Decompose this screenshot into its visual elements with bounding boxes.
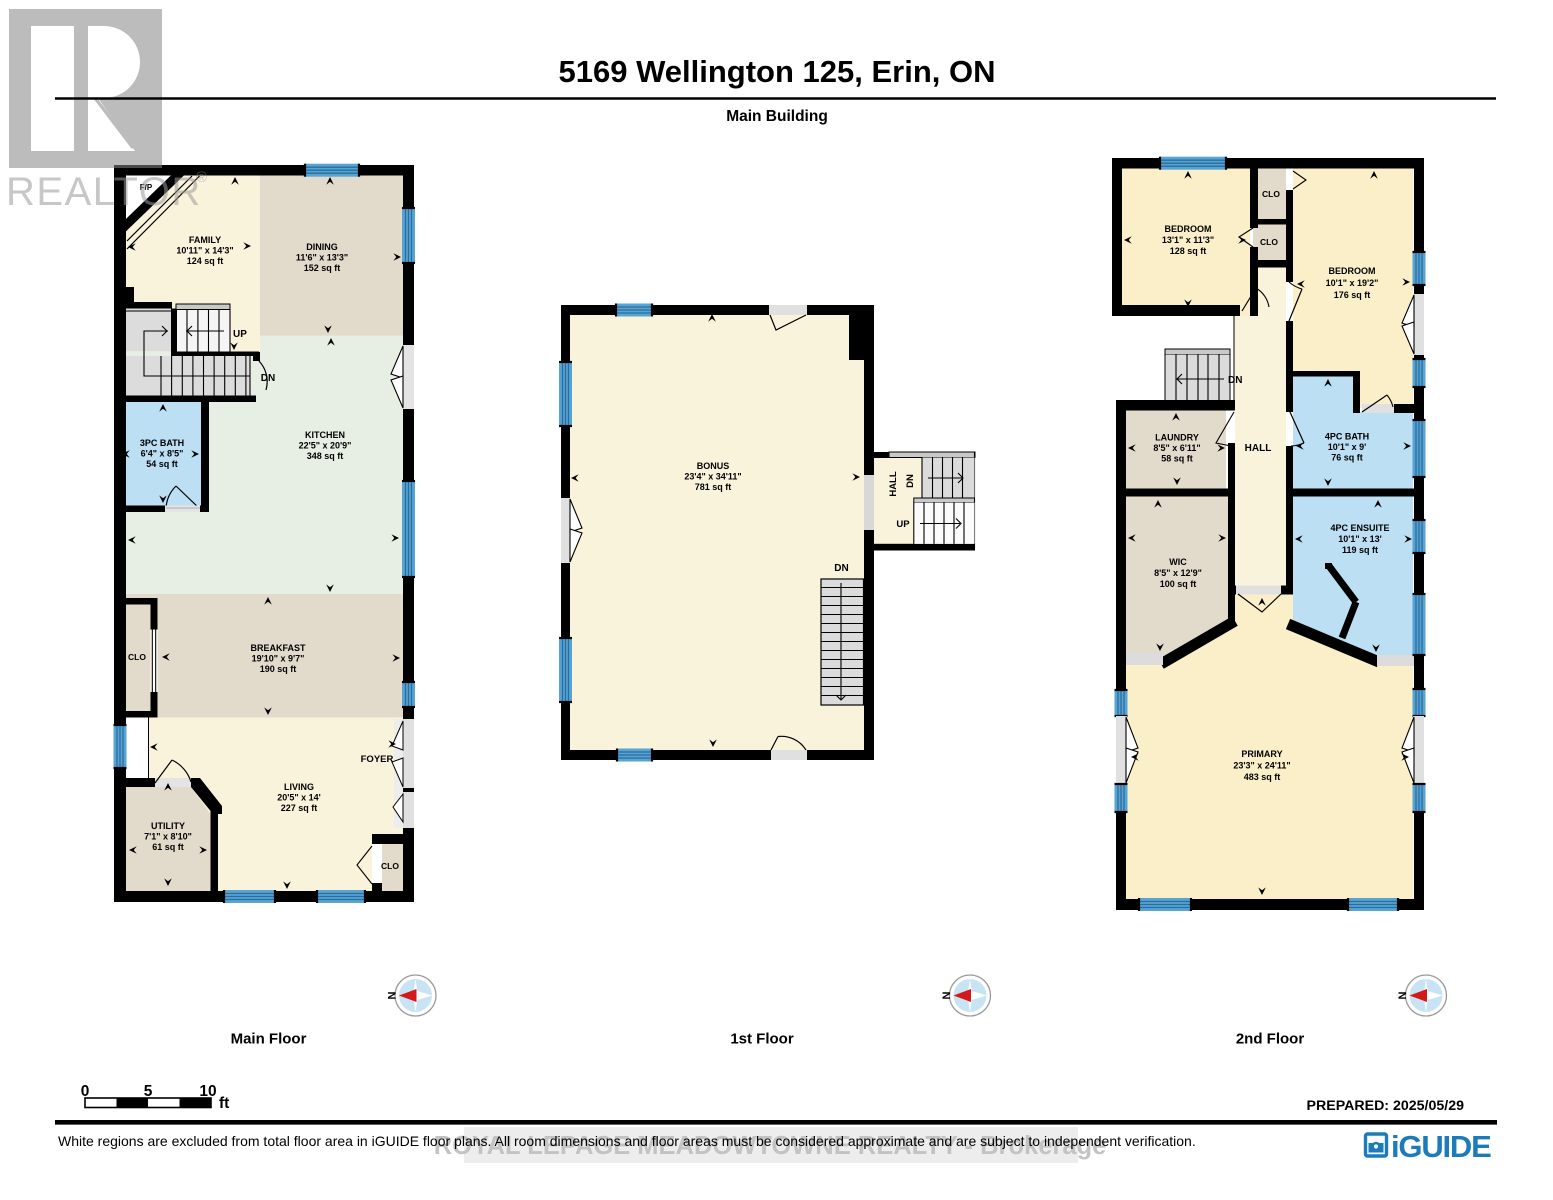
svg-text:7'1" x 8'10": 7'1" x 8'10" <box>144 832 192 842</box>
svg-text:UP: UP <box>233 329 247 340</box>
svg-text:N: N <box>1397 991 1409 999</box>
svg-text:CLO: CLO <box>128 652 146 662</box>
svg-text:11'6" x 13'3": 11'6" x 13'3" <box>296 253 348 263</box>
svg-text:190 sq ft: 190 sq ft <box>260 664 297 674</box>
svg-text:4PC ENSUITE: 4PC ENSUITE <box>1330 523 1389 533</box>
svg-text:10'11" x 14'3": 10'11" x 14'3" <box>176 246 233 256</box>
svg-text:DINING: DINING <box>306 242 338 252</box>
svg-text:6'4" x 8'5": 6'4" x 8'5" <box>141 449 184 459</box>
svg-text:FOYER: FOYER <box>361 754 394 765</box>
svg-text:5169 Wellington 125, Erin, ON: 5169 Wellington 125, Erin, ON <box>559 54 996 89</box>
svg-text:348 sq ft: 348 sq ft <box>307 451 344 461</box>
svg-text:8'5" x 6'11": 8'5" x 6'11" <box>1153 443 1200 453</box>
svg-text:®: ® <box>196 169 207 186</box>
svg-text:19'10" x 9'7": 19'10" x 9'7" <box>252 654 305 664</box>
svg-text:20'5" x 14': 20'5" x 14' <box>277 793 321 803</box>
svg-text:UTILITY: UTILITY <box>151 821 185 831</box>
svg-text:2nd Floor: 2nd Floor <box>1236 1031 1304 1048</box>
svg-text:BONUS: BONUS <box>697 461 730 471</box>
svg-text:N: N <box>387 991 399 999</box>
svg-text:58 sq ft: 58 sq ft <box>1161 454 1193 464</box>
svg-text:128 sq ft: 128 sq ft <box>1170 246 1207 256</box>
svg-text:KITCHEN: KITCHEN <box>305 430 345 440</box>
svg-text:HALL: HALL <box>888 471 899 497</box>
svg-text:4PC BATH: 4PC BATH <box>1325 432 1369 442</box>
svg-text:N: N <box>941 991 953 999</box>
svg-text:54 sq ft: 54 sq ft <box>146 459 178 469</box>
svg-text:23'4" x 34'11": 23'4" x 34'11" <box>684 472 741 482</box>
svg-text:HALL: HALL <box>1245 443 1272 454</box>
svg-text:76 sq ft: 76 sq ft <box>1331 453 1363 463</box>
svg-text:119 sq ft: 119 sq ft <box>1342 545 1378 555</box>
svg-text:Main Floor: Main Floor <box>231 1031 307 1048</box>
svg-text:REALTOR: REALTOR <box>6 170 202 214</box>
svg-text:483 sq ft: 483 sq ft <box>1244 772 1281 782</box>
svg-text:LAUNDRY: LAUNDRY <box>1155 433 1199 443</box>
svg-text:BEDROOM: BEDROOM <box>1165 224 1212 234</box>
svg-text:10'1" x 9': 10'1" x 9' <box>1328 442 1367 452</box>
svg-text:PRIMARY: PRIMARY <box>1241 749 1282 759</box>
svg-text:CLO: CLO <box>1260 237 1278 247</box>
svg-text:BREAKFAST: BREAKFAST <box>250 643 306 653</box>
svg-text:PREPARED: 2025/05/29: PREPARED: 2025/05/29 <box>1307 1098 1465 1114</box>
svg-text:152 sq ft: 152 sq ft <box>304 263 341 273</box>
svg-text:DN: DN <box>834 563 848 574</box>
svg-text:124 sq ft: 124 sq ft <box>187 256 224 266</box>
svg-text:LIVING: LIVING <box>284 782 314 792</box>
svg-text:22'5" x 20'9": 22'5" x 20'9" <box>299 441 352 451</box>
svg-text:10'1" x 19'2": 10'1" x 19'2" <box>1326 278 1379 288</box>
svg-text:ft: ft <box>219 1095 229 1112</box>
svg-text:iGUIDE: iGUIDE <box>1391 1129 1491 1164</box>
svg-text:8'5" x 12'9": 8'5" x 12'9" <box>1154 568 1202 578</box>
svg-text:10'1" x 13': 10'1" x 13' <box>1338 534 1382 544</box>
svg-text:227 sq ft: 227 sq ft <box>281 803 318 813</box>
svg-text:BEDROOM: BEDROOM <box>1329 266 1376 276</box>
svg-text:WIC: WIC <box>1169 557 1187 567</box>
svg-text:UP: UP <box>896 519 910 530</box>
svg-text:DN: DN <box>905 474 916 488</box>
svg-text:100 sq ft: 100 sq ft <box>1160 579 1197 589</box>
svg-text:23'3" x 24'11": 23'3" x 24'11" <box>1233 761 1290 771</box>
svg-text:61 sq ft: 61 sq ft <box>152 842 184 852</box>
svg-text:3PC BATH: 3PC BATH <box>140 438 184 448</box>
svg-text:781 sq ft: 781 sq ft <box>695 482 732 492</box>
svg-text:FAMILY: FAMILY <box>189 235 221 245</box>
svg-text:DN: DN <box>1228 375 1242 386</box>
svg-text:1st Floor: 1st Floor <box>730 1031 794 1048</box>
svg-text:13'1" x 11'3": 13'1" x 11'3" <box>1162 235 1214 245</box>
svg-text:Main Building: Main Building <box>726 108 828 125</box>
svg-text:176 sq ft: 176 sq ft <box>1334 290 1371 300</box>
svg-text:CLO: CLO <box>381 861 399 871</box>
svg-text:White regions are excluded fro: White regions are excluded from total fl… <box>58 1133 1196 1149</box>
svg-text:CLO: CLO <box>1262 189 1280 199</box>
svg-text:DN: DN <box>261 373 275 384</box>
